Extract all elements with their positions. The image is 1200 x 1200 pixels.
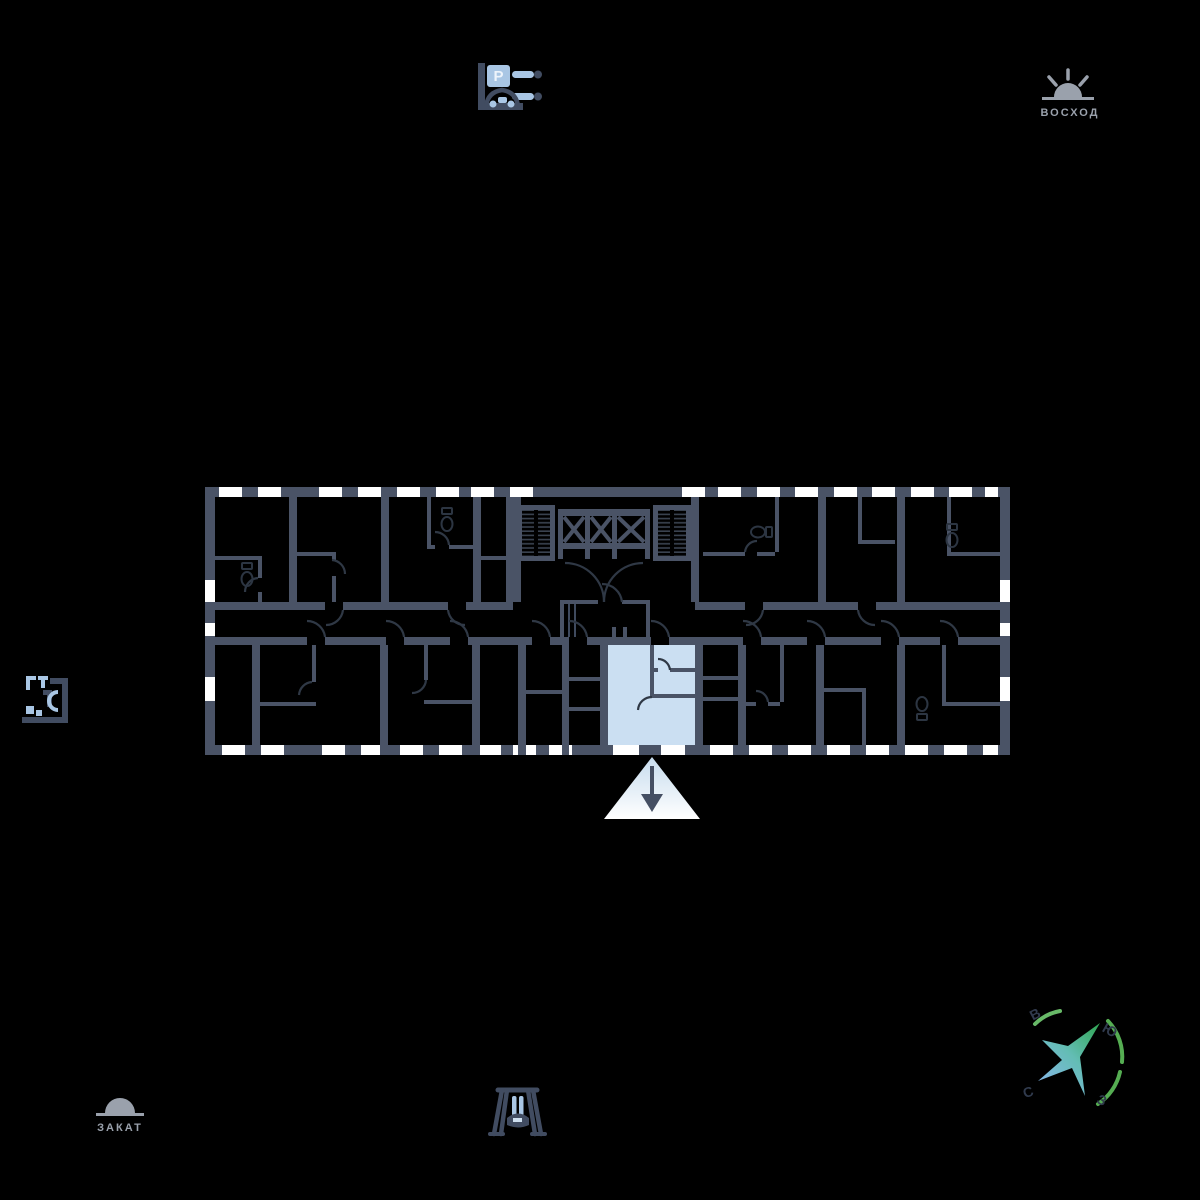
lobby-door-arc (604, 563, 643, 602)
elevator-shafts (558, 509, 650, 559)
floorplan-canvas: P ВОСХОД ЗАКАТ (0, 0, 1200, 1200)
parking-letter: P (493, 68, 503, 85)
compass-star (1038, 1023, 1100, 1096)
toilet (442, 508, 453, 531)
compass-icon: В Ю С З (1021, 1005, 1123, 1110)
scene: P ВОСХОД ЗАКАТ (0, 0, 1200, 1200)
compass-letter-north: С (1021, 1083, 1036, 1101)
apartment-walls (252, 497, 946, 755)
sunrise-label: ВОСХОД (1040, 107, 1099, 119)
entrance-marker (604, 757, 700, 819)
sun-dome (1054, 83, 1082, 97)
elevator-core (513, 497, 699, 637)
stairwell-right (653, 505, 691, 561)
toilet (917, 697, 928, 720)
lobby-door-arc (565, 563, 604, 602)
sunset-icon: ЗАКАТ (96, 1098, 144, 1134)
compass-letter-west: З (1095, 1091, 1110, 1109)
floor-plan (205, 487, 1010, 819)
sun-dome (105, 1098, 135, 1113)
toilet (242, 563, 253, 586)
toilet (751, 527, 772, 538)
sunrise-icon: ВОСХОД (1040, 70, 1099, 119)
stairwell-left (517, 505, 555, 561)
swing-icon (490, 1090, 545, 1134)
parking-icon: P (478, 63, 542, 110)
sunset-label: ЗАКАТ (97, 1122, 143, 1134)
mini-floorplan-icon (22, 676, 68, 723)
down-arrow-icon (650, 766, 654, 796)
